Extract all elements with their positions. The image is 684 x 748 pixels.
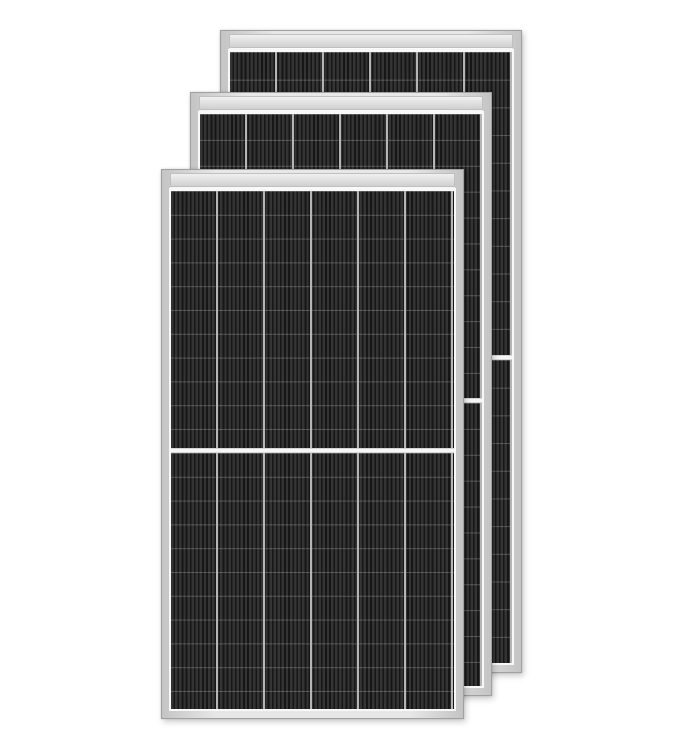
panel-top-rail [170, 173, 455, 187]
cell-grid-bottom-half [171, 453, 454, 710]
solar-panel-front [161, 169, 464, 719]
panel-top-rail [229, 34, 513, 48]
panel-top-rail [199, 96, 483, 110]
product-image-canvas [0, 0, 684, 748]
panel-cell-area [169, 188, 456, 711]
cell-grid-top-half [171, 191, 454, 448]
